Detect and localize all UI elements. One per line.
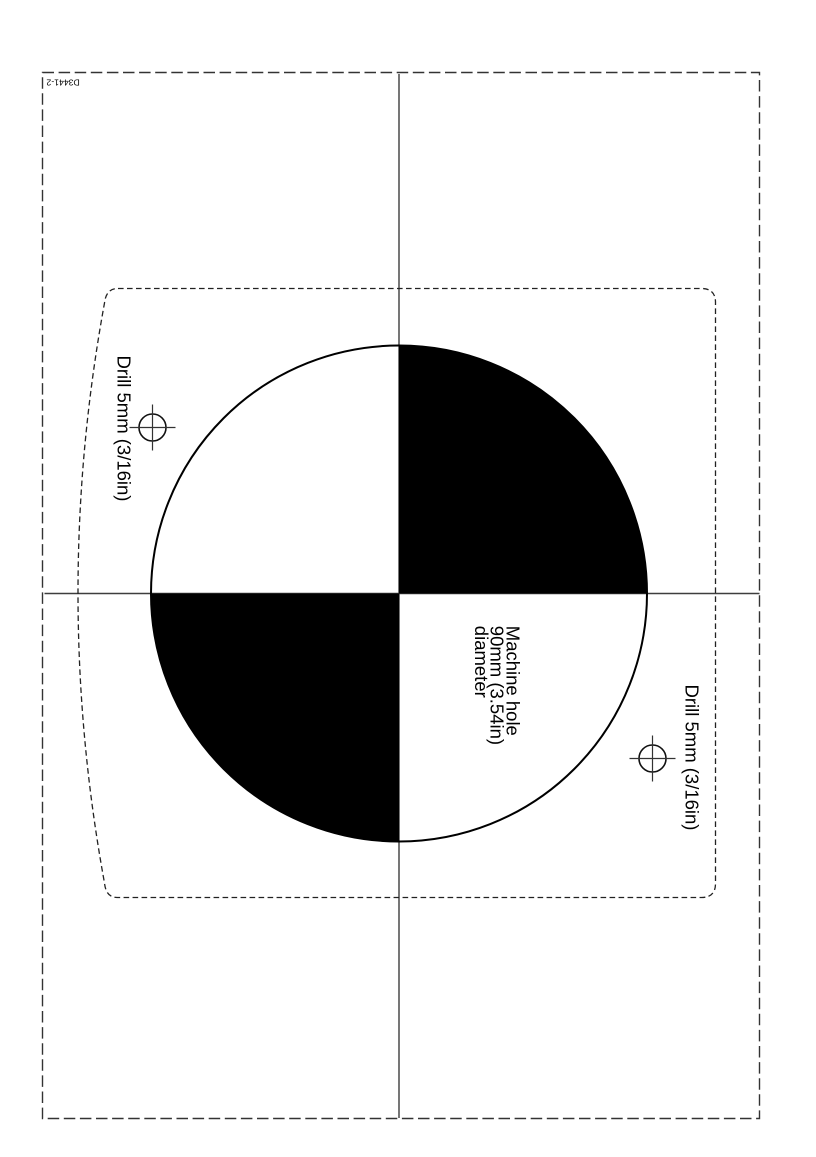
svg-text:diameter: diameter bbox=[471, 626, 492, 698]
svg-text:Drill 5mm (3/16in): Drill 5mm (3/16in) bbox=[681, 685, 702, 831]
svg-text:D3441-2: D3441-2 bbox=[46, 77, 79, 87]
svg-text:Drill 5mm (3/16in): Drill 5mm (3/16in) bbox=[114, 356, 135, 502]
